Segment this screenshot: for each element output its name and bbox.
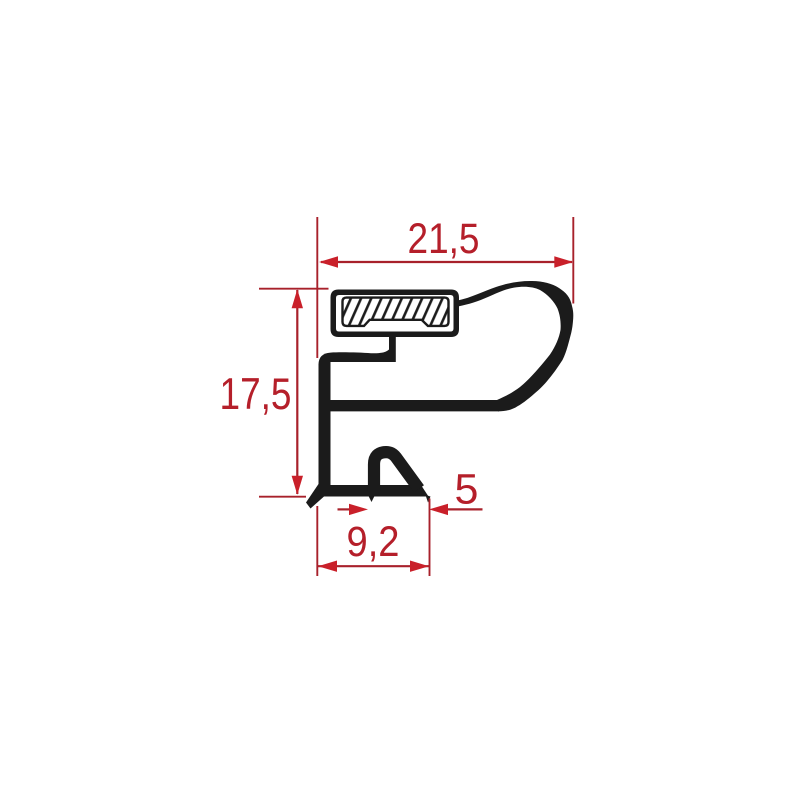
svg-text:17,5: 17,5 (220, 370, 292, 419)
svg-text:21,5: 21,5 (408, 215, 480, 263)
svg-text:5: 5 (455, 466, 479, 514)
svg-text:9,2: 9,2 (347, 518, 400, 566)
